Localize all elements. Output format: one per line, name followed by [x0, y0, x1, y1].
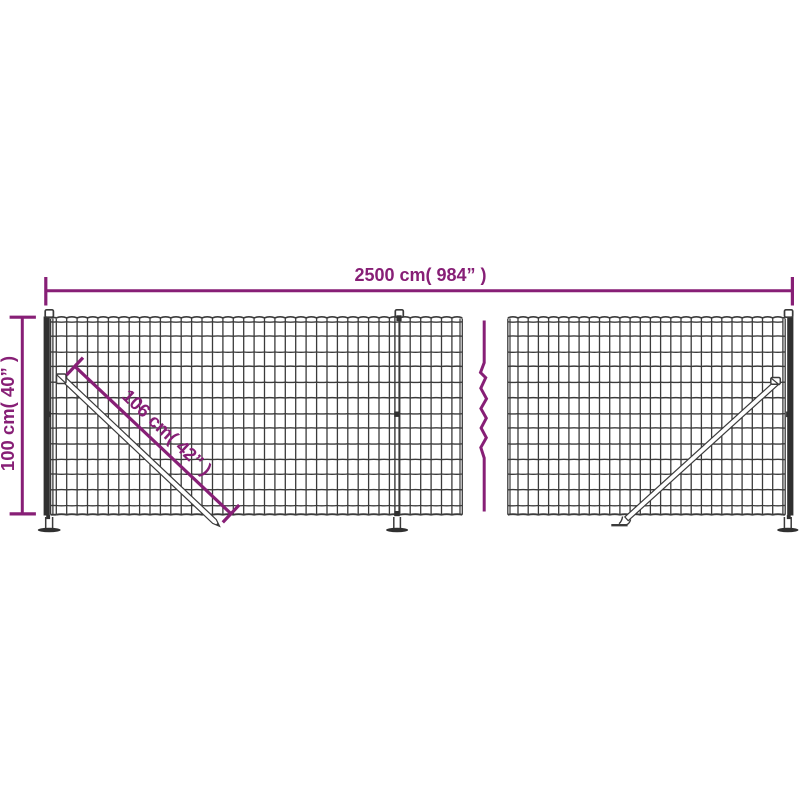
- svg-text:2500 cm( 984” ): 2500 cm( 984” ): [354, 265, 486, 285]
- svg-text:100 cm( 40” ): 100 cm( 40” ): [0, 356, 18, 471]
